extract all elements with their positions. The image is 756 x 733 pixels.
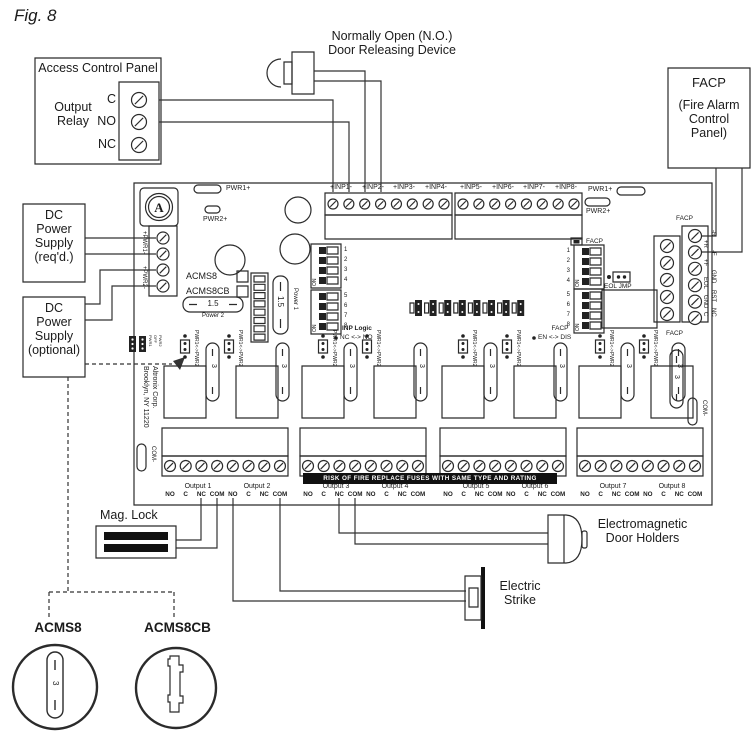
output-label: Output 6: [515, 483, 555, 491]
pwr2-led-label-left: PWR2+: [203, 216, 227, 224]
eol-relay: [602, 290, 657, 328]
facp-terminal-inner: C: [701, 312, 708, 316]
acms8-legend-icon: [13, 645, 97, 729]
pwr-select-label: PWR1<->PWR2: [514, 330, 520, 366]
com-minus-left-icon: [137, 444, 146, 471]
access-terminal-c: C: [88, 92, 116, 106]
facp-strip-bottom-label: FACP: [666, 330, 683, 337]
dip-on-label: ON: [576, 280, 582, 288]
output-label: Output 7: [593, 483, 633, 491]
dip-number: 2: [344, 257, 347, 264]
input-terminal-label: +INP6-: [486, 184, 520, 192]
facp-terminal-inner: EOL: [701, 277, 708, 289]
dip-number: 6: [560, 302, 570, 309]
facp-dip-range: EN <-> DIS: [538, 334, 571, 341]
dc-required-label: DC Power Supply (req'd.): [24, 208, 84, 264]
acms8-legend-label: ACMS8: [18, 620, 98, 635]
input-terminal-label: +INP5-: [454, 184, 488, 192]
door-device-label: Normally Open (N.O.) Door Releasing Devi…: [312, 29, 472, 57]
channel-fuse-rating: 3: [209, 364, 217, 368]
pwr-small-jumper-label: PWR2: [158, 335, 162, 347]
output-terminal-label: COM: [408, 491, 428, 498]
pwr-small-jumpers-icon: [129, 336, 146, 352]
dip-number: 1: [560, 248, 570, 255]
power1-fuse-rating: 1.5: [275, 296, 284, 307]
input-terminal-label: +INP4-: [419, 184, 453, 192]
output-label: Output 1: [178, 483, 218, 491]
dip-on-label: ON: [313, 279, 319, 287]
dip-number: 1: [344, 247, 347, 254]
figure-label: Fig. 8: [14, 6, 57, 25]
capacitor-icons: [215, 197, 311, 275]
dip-number: 2: [560, 258, 570, 265]
acms8cb-legend-icon: [136, 648, 216, 728]
facp-terminal-outer: RST: [709, 290, 716, 302]
pwr2-led-label-right: PWR2+: [586, 208, 610, 216]
input-terminal-label: +INP2-: [356, 184, 390, 192]
output-terminal-label: COM: [548, 491, 568, 498]
pwr2-terminal-label: +PWR2-: [140, 266, 147, 289]
mfr-name: Altronix Corp.: [150, 366, 158, 408]
right-fuse-rating: 3: [672, 375, 680, 379]
channel-fuse-rating: 3: [675, 364, 683, 368]
pwr-select-label: PWR1<->PWR2: [374, 330, 380, 366]
facp-terminal-inner: +R: [701, 240, 708, 248]
channel-fuse-rating: 3: [279, 364, 287, 368]
dip-number: 5: [560, 292, 570, 299]
electric-strike-label: Electric Strike: [490, 579, 550, 607]
com-minus-right-label: COM-: [700, 400, 707, 416]
dip-number: 7: [344, 313, 347, 320]
dip-number: 6: [344, 303, 347, 310]
altronix-logo-icon: A: [140, 188, 178, 226]
input-terminal-label: +INP8-: [549, 184, 583, 192]
acms8cb-checkbox: [237, 286, 248, 297]
input-terminal-label: +INP1-: [324, 184, 358, 192]
power2-fuse-rating: 1.5: [184, 300, 242, 309]
pwr-select-label: PWR1<->PWR2: [651, 330, 657, 366]
pwr-select-label: PWR1<->PWR2: [470, 330, 476, 366]
dip-number: 8: [560, 322, 570, 329]
access-panel-title: Access Control Panel: [37, 61, 159, 75]
electric-strike-icon: [465, 567, 485, 629]
dip-on-label: ON: [313, 325, 319, 333]
diagram-art: A: [0, 0, 756, 733]
output-label: Output 8: [652, 483, 692, 491]
inp-logic-range: NC <-> NO: [340, 334, 373, 341]
dc-optional-label: DC Power Supply (optional): [24, 301, 84, 357]
com-minus-left-label: COM-: [149, 446, 156, 462]
pwr1-led-label-left: PWR1+: [226, 185, 250, 193]
access-terminal-nc: NC: [88, 137, 116, 151]
pwr-select-label: PWR1<->PWR2: [607, 330, 613, 366]
dip-number: 8: [344, 323, 347, 330]
channel-fuse-rating: 3: [624, 364, 632, 368]
facp-led-label: FACP: [586, 238, 603, 245]
output-label: Output 3: [316, 483, 356, 491]
em-holders-label: Electromagnetic Door Holders: [590, 517, 695, 545]
pwr-small-jumper-label: OFF: [153, 335, 157, 343]
dip-number: 5: [344, 293, 347, 300]
wiring-diagram-fig8: A: [0, 0, 756, 733]
channel-fuse-rating: 3: [487, 364, 495, 368]
pwr1-terminal-label: +PWR1-: [140, 231, 147, 254]
channel-fuse-rating: 3: [417, 364, 425, 368]
facp-terminal-outer: -R: [709, 230, 716, 236]
output-label: Output 4: [375, 483, 415, 491]
access-terminal-no: NO: [88, 114, 116, 128]
facp-terminal-outer: GND: [709, 270, 716, 283]
output-label: Output 2: [237, 483, 277, 491]
facp-strip-top-label: FACP: [676, 215, 693, 222]
input-terminal-label: +INP7-: [517, 184, 551, 192]
dip-number: 4: [344, 277, 347, 284]
dip-number: 3: [344, 267, 347, 274]
door-holder-icon: [548, 515, 587, 563]
pin-connector-icon: [251, 273, 268, 342]
pwr1-led-label-right: PWR1+: [588, 186, 612, 194]
facp-title: FACP: [670, 76, 748, 91]
facp-terminal-inner: +F: [701, 259, 708, 266]
output-label: Output 5: [456, 483, 496, 491]
eol-jumper-icon: [607, 272, 630, 282]
acms8cb-check-label: ACMS8CB: [186, 286, 230, 296]
acms8-fuse-rating: 3: [50, 681, 59, 685]
pwr-small-jumper-label: PWR1: [148, 335, 152, 347]
output-terminal-label: COM: [685, 491, 705, 498]
facp-terminal-outer: -F: [709, 250, 716, 256]
output-terminal-label: COM: [270, 491, 290, 498]
dip-on-label: ON: [576, 324, 582, 332]
input-terminal-label: +INP3-: [387, 184, 421, 192]
jumper-arrow-icon: [173, 357, 185, 370]
acms8-check-label: ACMS8: [186, 271, 217, 281]
pwr-select-label: PWR1<->PWR2: [192, 330, 198, 366]
mfr-address: Brooklyn, NY 11220: [141, 366, 149, 428]
facp-terminal-inner: GND: [701, 295, 708, 308]
acms8cb-legend-label: ACMS8CB: [130, 620, 225, 635]
mag-lock-label: Mag. Lock: [100, 508, 158, 522]
power1-label: Power 1: [291, 288, 298, 310]
eol-jmp-label: EOL JMP: [604, 283, 632, 290]
pwr-select-label: PWR1<->PWR2: [236, 330, 242, 366]
facp-subtitle: (Fire Alarm Control Panel): [670, 98, 748, 140]
dip-number: 3: [560, 268, 570, 275]
dip-number: 7: [560, 312, 570, 319]
facp-terminal-outer: NC: [709, 308, 716, 317]
channel-fuse-rating: 3: [347, 364, 355, 368]
pwr-select-label: PWR1<->PWR2: [330, 330, 336, 366]
mag-lock-icon: [96, 526, 176, 558]
dip-number: 4: [560, 278, 570, 285]
channel-fuse-rating: 3: [557, 364, 565, 368]
svg-text:A: A: [154, 200, 164, 215]
power2-label: Power 2: [184, 313, 242, 320]
push-button-icon: [267, 52, 314, 94]
